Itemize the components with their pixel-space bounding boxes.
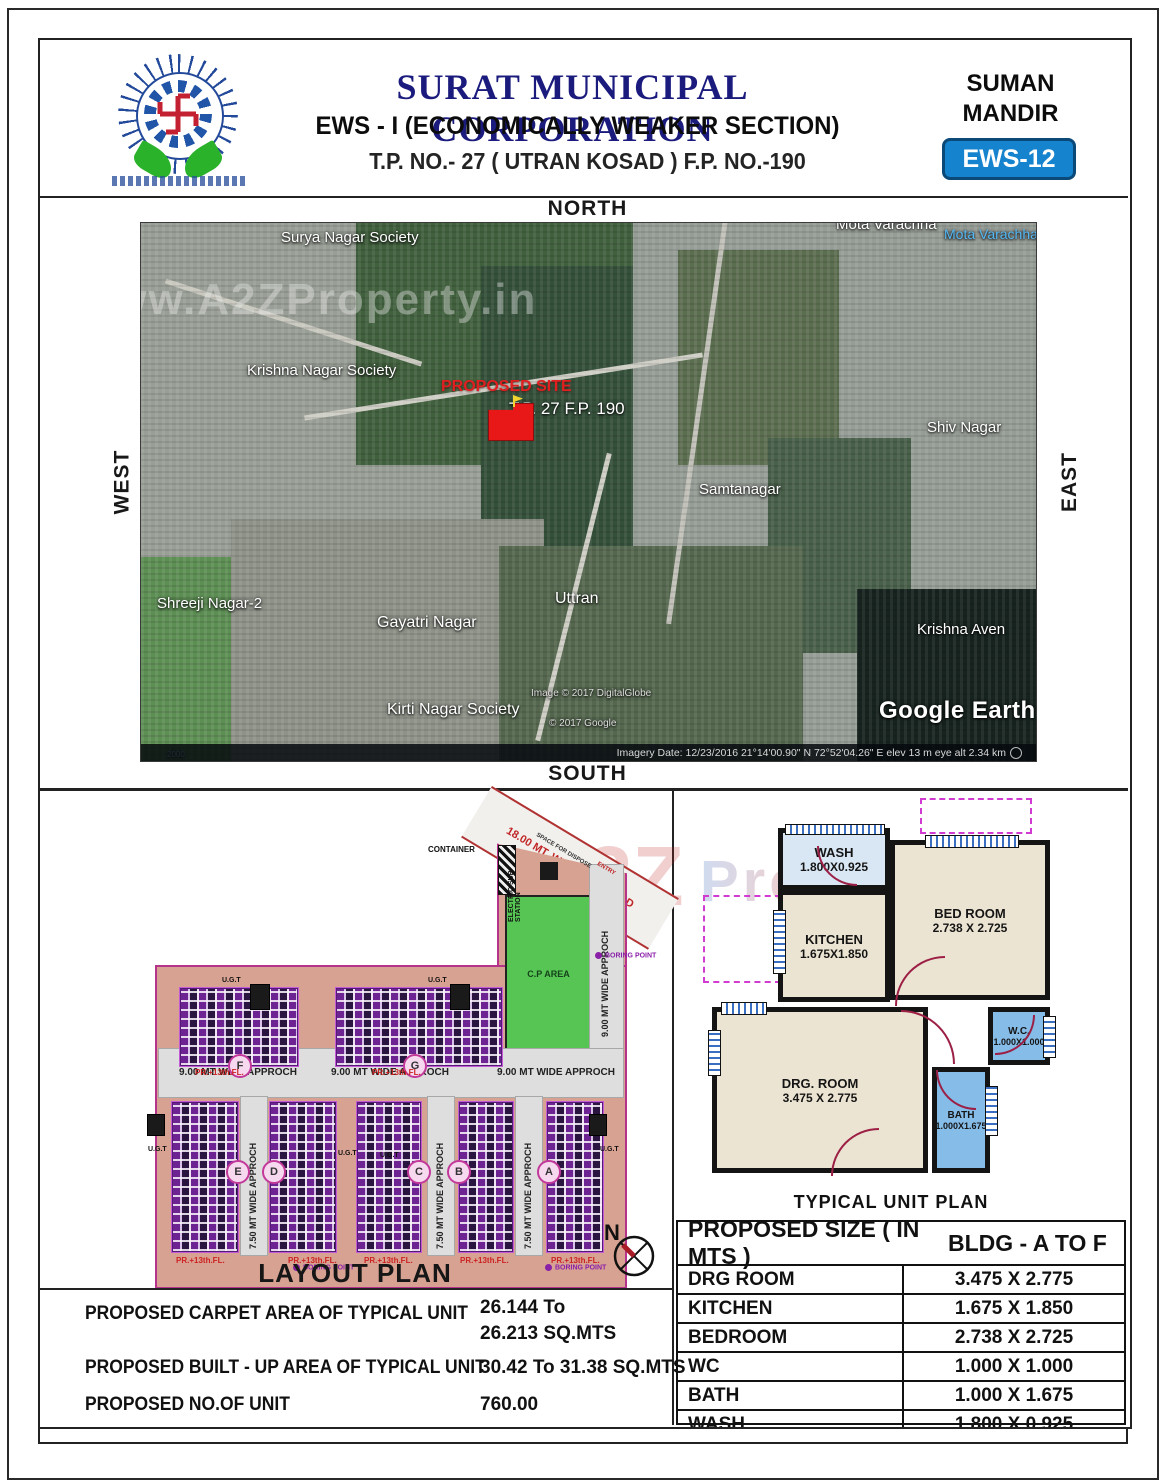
table-cell-room: KITCHEN <box>678 1295 902 1322</box>
table-cell-size: 2.738 X 2.725 <box>902 1324 1124 1351</box>
gate-structure <box>540 862 558 880</box>
size-table: PROPOSED SIZE ( IN MTS ) BLDG - A TO F D… <box>676 1220 1126 1425</box>
approach-road-label: 9.00 MT WIDE APPROCH <box>497 1067 615 1078</box>
summary-value-carpet-1: 26.144 To <box>480 1297 565 1319</box>
unit-plan-title: TYPICAL UNIT PLAN <box>705 1192 1077 1213</box>
ugt-tank <box>589 1114 607 1136</box>
layout-plan-title: LAYOUT PLAN <box>155 1258 555 1289</box>
smc-logo <box>104 52 254 194</box>
map-credit-google: © 2017 Google <box>549 718 616 729</box>
map-label-shreeji-nagar: Shreeji Nagar-2 <box>157 595 262 612</box>
table-cell-size: 1.675 X 1.850 <box>902 1295 1124 1322</box>
room-name: BED ROOM <box>934 906 1006 921</box>
window <box>925 835 1019 848</box>
summary-value-builtup: 30.42 To 31.38 SQ.MTS <box>480 1357 686 1379</box>
direction-south: SOUTH <box>140 762 1035 786</box>
summary-value-units: 760.00 <box>480 1394 538 1416</box>
table-row: BEDROOM 2.738 X 2.725 <box>678 1322 1124 1351</box>
floor-label: PR.+13th.FL. <box>372 1068 421 1077</box>
boring-point-label: BORING POINT <box>595 952 635 959</box>
ugt-label: U.G.T <box>380 1152 399 1159</box>
table-cell-room: BEDROOM <box>678 1324 902 1351</box>
map-label-mota-varachha: Mota Varachha <box>836 222 937 233</box>
project-name-line1: SUMAN <box>938 70 1083 98</box>
ugt-label: U.G.T <box>600 1146 619 1153</box>
window <box>708 1030 721 1076</box>
satellite-map: www.A2ZProperty.in Mota Varachha Mota Va… <box>140 222 1037 762</box>
table-cell-room: BATH <box>678 1382 902 1409</box>
window <box>1043 1016 1056 1058</box>
summary-label-builtup: PROPOSED BUILT - UP AREA OF TYPICAL UNIT <box>85 1357 486 1379</box>
room-drg: DRG. ROOM 3.475 X 2.775 <box>712 1007 928 1173</box>
map-label-surya-nagar: Surya Nagar Society <box>281 229 419 246</box>
map-statusbar: Imagery Date: 12/23/2016 21°14'00.90" N … <box>141 744 1036 761</box>
map-label-proposed-site: PROPOSED SITE <box>441 378 572 396</box>
north-compass-icon: N <box>600 1222 660 1282</box>
direction-east: EAST <box>1058 452 1082 512</box>
map-label-krishna-avenue: Krishna Aven <box>917 621 1005 638</box>
building-letter-B: B <box>447 1160 471 1184</box>
logo-swastika-icon <box>156 92 200 136</box>
map-credit-digitalglobe: Image © 2017 DigitalGlobe <box>531 688 651 699</box>
map-noise <box>141 223 1036 761</box>
window <box>985 1086 998 1136</box>
ugt-tank <box>147 1114 165 1136</box>
room-dim: 1.000X1.675 <box>935 1121 986 1131</box>
compass-ring-icon <box>1010 747 1022 759</box>
table-cell-room: WC <box>678 1353 902 1380</box>
window <box>773 910 786 974</box>
scheme-title: EWS - I (ECONOMICALLY WEAKER SECTION) <box>278 112 878 141</box>
size-table-header: PROPOSED SIZE ( IN MTS ) BLDG - A TO F <box>678 1222 1124 1264</box>
typical-unit-plan: Property WASH 1.800X0.925 BED ROOM 2.738… <box>705 818 1077 1180</box>
window <box>721 1002 767 1015</box>
table-row: WC 1.000 X 1.000 <box>678 1351 1124 1380</box>
container-label: CONTAINER <box>428 845 475 854</box>
table-cell-size: 1.000 X 1.000 <box>902 1353 1124 1380</box>
building-letter-E: E <box>226 1160 250 1184</box>
panel-vertical-divider <box>672 791 674 1425</box>
room-kitchen: KITCHEN 1.675X1.850 <box>778 890 890 1002</box>
direction-north: NORTH <box>140 197 1035 221</box>
map-status-text: Imagery Date: 12/23/2016 21°14'00.90" N … <box>617 747 1006 759</box>
approach-road-label: 7.50 MT WIDE APPROCH <box>523 1103 533 1249</box>
room-dim: 1.675X1.850 <box>800 947 868 961</box>
ugt-label: U.G.T <box>148 1146 167 1153</box>
map-section-divider <box>38 788 1128 791</box>
building-letter-D: D <box>262 1160 286 1184</box>
footer-strip <box>38 1427 1128 1444</box>
electric-substation-label: ELECTRIC SUB STATION <box>508 852 522 922</box>
room-name: BATH <box>947 1110 974 1121</box>
google-earth-logo: Google Earth <box>879 697 1036 725</box>
room-dim: 3.475 X 2.775 <box>783 1091 858 1105</box>
building-letter-C: C <box>407 1160 431 1184</box>
map-label-krishna-nagar: Krishna Nagar Society <box>247 362 396 379</box>
map-label-uttran: Uttran <box>555 590 599 608</box>
brochure-page: SURAT MUNICIPAL CORPORATION EWS - I (ECO… <box>0 0 1164 1484</box>
balcony-projection-dashed <box>920 798 1032 834</box>
table-cell-size: 3.475 X 2.775 <box>902 1266 1124 1293</box>
ugt-label: U.G.T <box>338 1150 357 1157</box>
ugt-label: U.G.T <box>428 977 447 984</box>
room-name: DRG. ROOM <box>782 1076 859 1091</box>
ugt-tank <box>250 984 270 1010</box>
project-name-line2: MANDIR <box>938 100 1083 128</box>
window <box>785 824 885 835</box>
table-cell-room: DRG ROOM <box>678 1266 902 1293</box>
direction-west: WEST <box>110 450 134 515</box>
summary-value-carpet-2: 26.213 SQ.MTS <box>480 1323 616 1345</box>
room-name: KITCHEN <box>805 932 863 947</box>
ugt-tank <box>450 984 470 1010</box>
approach-road-label: 7.50 MT WIDE APPROCH <box>248 1103 258 1249</box>
tp-line: T.P. NO.- 27 ( UTRAN KOSAD ) F.P. NO.-19… <box>284 148 890 175</box>
summary-label-carpet: PROPOSED CARPET AREA OF TYPICAL UNIT <box>85 1303 468 1325</box>
size-table-col2: BLDG - A TO F <box>948 1230 1107 1257</box>
map-label-gayatri-nagar: Gayatri Nagar <box>377 614 477 632</box>
table-row: BATH 1.000 X 1.675 <box>678 1380 1124 1409</box>
map-label-mota-varachha-blue: Mota Varachha <box>944 226 1037 242</box>
summary-label-units: PROPOSED NO.OF UNIT <box>85 1394 290 1416</box>
door-swing <box>901 1010 955 1064</box>
size-table-col1: PROPOSED SIZE ( IN MTS ) <box>678 1216 948 1270</box>
floor-label: PR.+13th.FL. <box>195 1068 244 1077</box>
balcony-projection-dashed <box>703 895 781 983</box>
scheme-badge: EWS-12 <box>942 138 1076 180</box>
map-label-shiv-nagar: Shiv Nagar <box>927 419 1001 436</box>
building-letter-A: A <box>537 1160 561 1184</box>
compass-n-letter: N <box>604 1220 620 1246</box>
ugt-label: U.G.T <box>222 977 241 984</box>
table-row: DRG ROOM 3.475 X 2.775 <box>678 1264 1124 1293</box>
table-cell-size: 1.000 X 1.675 <box>902 1382 1124 1409</box>
table-row: KITCHEN 1.675 X 1.850 <box>678 1293 1124 1322</box>
logo-motto-text <box>112 176 246 186</box>
summary-top-divider <box>38 1288 674 1290</box>
cp-area-label: C.P AREA <box>527 969 570 979</box>
room-dim: 2.738 X 2.725 <box>933 921 1008 935</box>
approach-road-label: 7.50 MT WIDE APPROCH <box>435 1103 445 1249</box>
map-label-samtanagar: Samtanagar <box>699 481 781 498</box>
map-label-kirti-nagar: Kirti Nagar Society <box>387 701 520 719</box>
